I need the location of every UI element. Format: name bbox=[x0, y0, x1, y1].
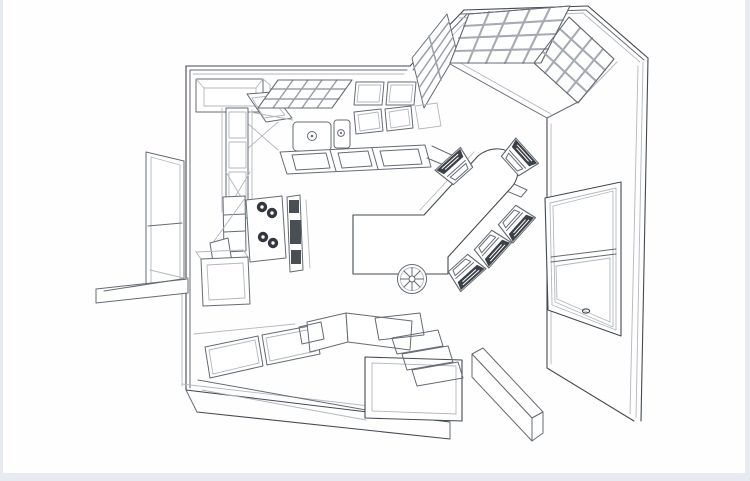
burner-3 bbox=[258, 232, 268, 242]
left-window bbox=[146, 152, 184, 294]
double-hung-window bbox=[545, 182, 621, 336]
base-cabinet bbox=[196, 250, 250, 306]
range-cooktop bbox=[246, 196, 286, 262]
wagon-wheel bbox=[398, 265, 427, 294]
oven-stack bbox=[287, 195, 310, 272]
bar-top-right-board bbox=[346, 313, 412, 350]
lattice-cabinet bbox=[258, 80, 352, 108]
dishwasher-fronts bbox=[354, 103, 441, 134]
double-basin-sink bbox=[293, 120, 350, 151]
burner-2 bbox=[267, 208, 277, 218]
burner-4 bbox=[268, 238, 278, 248]
sink-basin-small bbox=[334, 120, 350, 148]
bench bbox=[472, 348, 543, 441]
upper-cabinet-doors-right bbox=[354, 82, 416, 105]
bay-wall-right-edge bbox=[588, 6, 648, 58]
bottom-cabinet-panel-1 bbox=[205, 336, 263, 378]
chair-5 bbox=[445, 252, 486, 292]
right-wall-bottom-edge bbox=[547, 368, 634, 421]
bay-lattice-center bbox=[450, 6, 570, 63]
bar-top-left-board bbox=[307, 313, 348, 352]
burner-1 bbox=[257, 202, 267, 212]
raised-bar-island bbox=[299, 313, 462, 421]
kitchen-plan-drawing bbox=[0, 0, 750, 481]
